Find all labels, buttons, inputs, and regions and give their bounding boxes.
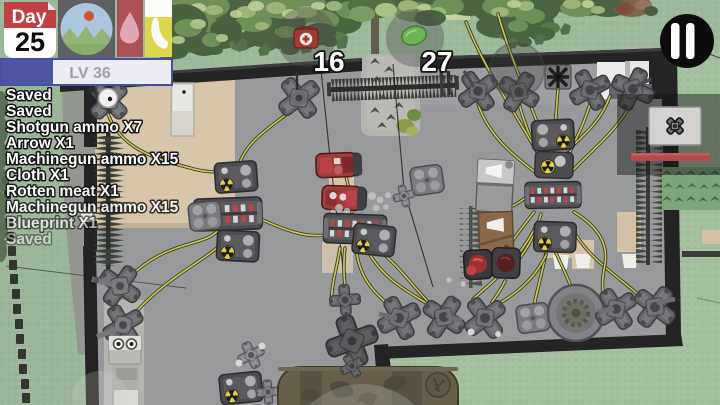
svg-text:27: 27	[421, 46, 452, 77]
svg-text:Machinegun ammo X15: Machinegun ammo X15	[6, 199, 179, 216]
svg-text:Arrow X1: Arrow X1	[6, 135, 74, 152]
svg-text:25: 25	[15, 27, 45, 57]
svg-text:Saved: Saved	[6, 231, 52, 248]
svg-text:Blueprint X1: Blueprint X1	[6, 215, 98, 232]
svg-text:LV 36: LV 36	[69, 65, 111, 82]
svg-text:Day: Day	[12, 7, 47, 28]
svg-text:Saved: Saved	[6, 103, 52, 120]
svg-text:Rotten meat X1: Rotten meat X1	[6, 183, 119, 200]
svg-text:16: 16	[313, 46, 344, 77]
svg-text:Cloth X1: Cloth X1	[6, 167, 69, 184]
svg-text:Shotgun ammo X7: Shotgun ammo X7	[6, 119, 142, 136]
svg-text:Machinegun ammo X15: Machinegun ammo X15	[6, 151, 179, 168]
svg-text:Saved: Saved	[6, 87, 52, 104]
